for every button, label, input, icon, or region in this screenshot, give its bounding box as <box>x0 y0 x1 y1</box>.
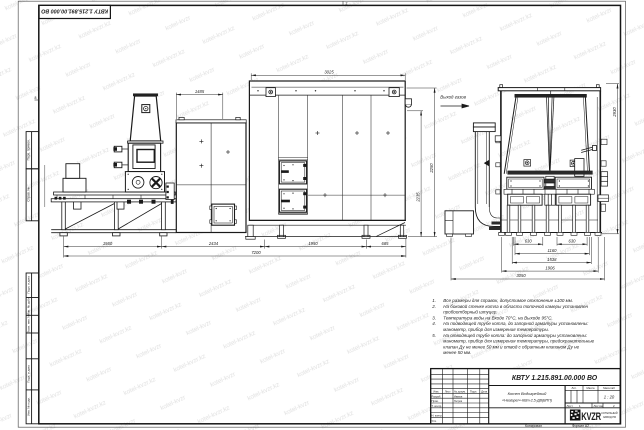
svg-text:Масса: Масса <box>587 386 595 390</box>
svg-text:3025: 3025 <box>324 70 334 75</box>
svg-text:2250: 2250 <box>429 163 434 174</box>
svg-text:Подп. и дата: Подп. и дата <box>27 365 31 383</box>
svg-text:KVZR: KVZR <box>581 411 601 423</box>
svg-text:Взам. инв. №: Взам. инв. № <box>27 314 31 333</box>
svg-text:Подп. и дата: Подп. и дата <box>27 276 31 294</box>
svg-text:1560: 1560 <box>103 241 113 246</box>
svg-text:7200: 7200 <box>251 250 261 255</box>
svg-text:Перв. примен.: Перв. примен. <box>27 139 31 160</box>
svg-text:№ докум.: № докум. <box>454 391 466 394</box>
svg-text:КОТЕЛЬНЫЙ: КОТЕЛЬНЫЙ <box>601 411 617 415</box>
svg-text:ЗАВОД РФ: ЗАВОД РФ <box>603 415 616 419</box>
svg-text:2235: 2235 <box>416 192 421 203</box>
svg-text:клапан Ду не менее 50 мм и отв: клапан Ду не менее 50 мм и отвод с обрат… <box>443 344 579 349</box>
svg-text:манометр, прибор для измерения: манометр, прибор для измерения температу… <box>443 327 549 332</box>
svg-text:Выход газов: Выход газов <box>440 95 466 100</box>
svg-text:Все размеры для справок, допус: Все размеры для справок, допустимое откл… <box>443 298 573 303</box>
svg-text:Формат А2: Формат А2 <box>572 424 589 428</box>
svg-text:Иванов: Иванов <box>454 395 463 398</box>
svg-text:Дата: Дата <box>481 390 487 394</box>
svg-text:Лист: Лист <box>567 404 574 408</box>
svg-text:пробоотборный штуцер.: пробоотборный штуцер. <box>443 309 497 315</box>
svg-text:2930: 2930 <box>612 107 617 118</box>
svg-text:1485: 1485 <box>195 89 205 94</box>
svg-text:Петров: Петров <box>454 400 463 403</box>
svg-text:1538: 1538 <box>547 257 557 262</box>
svg-text:На подводящей трубе котла, до: На подводящей трубе котла, до запорной а… <box>443 320 589 326</box>
svg-text:На боковой стенке котла в обла: На боковой стенке котла в области топочн… <box>443 303 588 309</box>
svg-text:манометр, прибор для измерения: манометр, прибор для измерения температу… <box>443 339 594 344</box>
svg-text:5.: 5. <box>432 333 436 338</box>
svg-text:3050: 3050 <box>516 273 526 278</box>
svg-text:Изм.: Изм. <box>433 390 439 394</box>
svg-text:1950: 1950 <box>308 241 318 246</box>
svg-text:630: 630 <box>569 238 577 243</box>
svg-text:Справ. №: Справ. № <box>27 187 31 202</box>
svg-text:2434: 2434 <box>208 241 219 246</box>
svg-text:Копировал: Копировал <box>525 424 542 428</box>
svg-text:8: 8 <box>35 96 37 100</box>
svg-text:2: 2 <box>346 2 348 6</box>
svg-text:Котел Водогрейный: Котел Водогрейный <box>508 391 547 396</box>
svg-text:630: 630 <box>525 238 533 243</box>
svg-text:Инв. № подл.: Инв. № подл. <box>27 397 31 416</box>
svg-text:КВТУ 1.215.891.00.000 ВО: КВТУ 1.215.891.00.000 ВО <box>512 375 598 382</box>
svg-text:Н. контр.: Н. контр. <box>432 414 443 418</box>
svg-text:Пров.: Пров. <box>432 399 439 403</box>
svg-text:1 : 20: 1 : 20 <box>604 394 615 399</box>
svg-text:На отводящей трубе котла: до з: На отводящей трубе котла: до запорной ар… <box>443 332 588 338</box>
svg-text:менее 50 мм.: менее 50 мм. <box>443 350 471 355</box>
svg-text:1.: 1. <box>432 298 436 303</box>
svg-text:2.: 2. <box>431 304 436 309</box>
svg-text:«Heataper»-КВт-2,5-ДВ(ВПП): «Heataper»-КВт-2,5-ДВ(ВПП) <box>502 398 552 402</box>
svg-text:Подп.: Подп. <box>470 390 477 394</box>
svg-text:Утв.: Утв. <box>432 419 437 423</box>
svg-text:КВТУ 1.215.891.00.000 ВО: КВТУ 1.215.891.00.000 ВО <box>41 8 109 14</box>
svg-text:Лит.: Лит. <box>572 386 577 390</box>
svg-text:1160: 1160 <box>547 248 557 253</box>
svg-text:Листов: Листов <box>594 404 604 408</box>
svg-text:4.: 4. <box>432 321 436 326</box>
svg-text:Т. контр.: Т. контр. <box>432 404 443 408</box>
svg-text:Лист: Лист <box>445 390 452 394</box>
svg-text:685: 685 <box>382 241 390 246</box>
svg-text:3.: 3. <box>432 315 436 320</box>
svg-text:1906: 1906 <box>545 265 555 270</box>
svg-text:Инв. № дубл.: Инв. № дубл. <box>27 297 31 316</box>
svg-text:Разраб.: Разраб. <box>432 394 442 398</box>
svg-text:Масштаб: Масштаб <box>603 386 615 390</box>
svg-text:Температура воды на Входе 70°С: Температура воды на Входе 70°С, на Выход… <box>443 315 552 320</box>
